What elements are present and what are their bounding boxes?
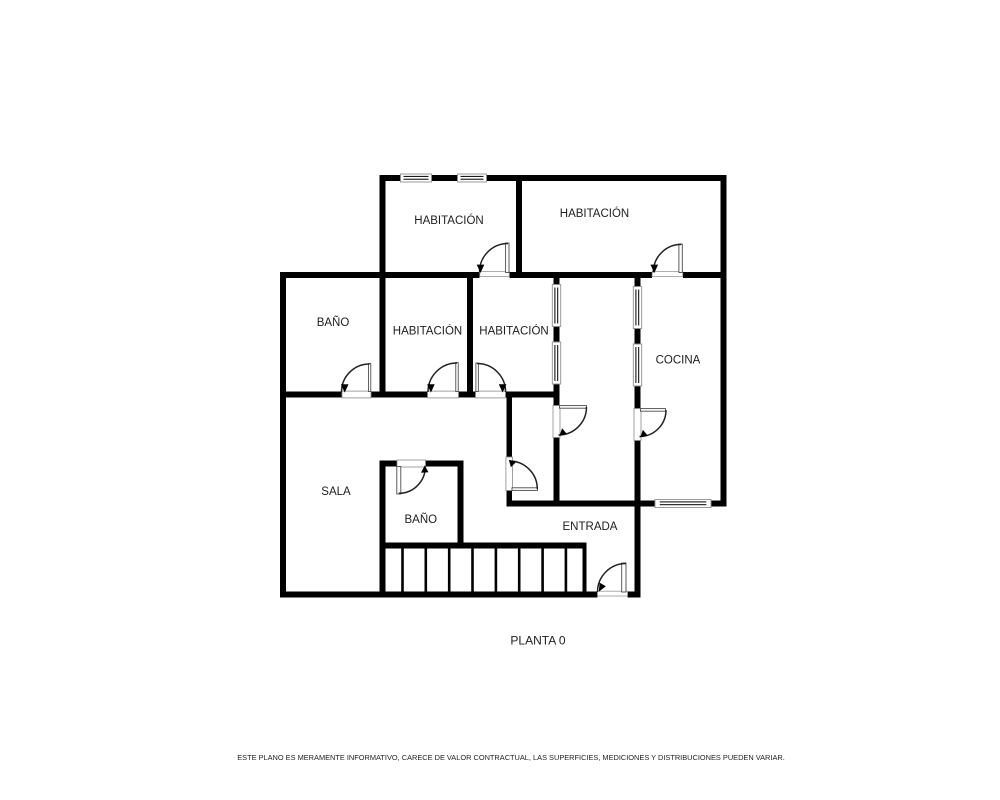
svg-text:PLANTA 0: PLANTA 0 <box>510 634 565 648</box>
svg-text:ENTRADA: ENTRADA <box>563 521 618 533</box>
svg-text:HABITACIÓN: HABITACIÓN <box>393 325 462 338</box>
svg-text:COCINA: COCINA <box>656 355 701 367</box>
svg-text:HABITACIÓN: HABITACIÓN <box>560 207 629 220</box>
svg-text:BAÑO: BAÑO <box>317 316 350 329</box>
svg-text:HABITACIÓN: HABITACIÓN <box>479 325 548 338</box>
svg-text:BAÑO: BAÑO <box>405 513 438 526</box>
svg-text:SALA: SALA <box>321 486 351 498</box>
svg-text:ESTE PLANO ES MERAMENTE INFORM: ESTE PLANO ES MERAMENTE INFORMATIVO, CAR… <box>237 753 785 762</box>
svg-text:HABITACIÓN: HABITACIÓN <box>414 214 483 227</box>
